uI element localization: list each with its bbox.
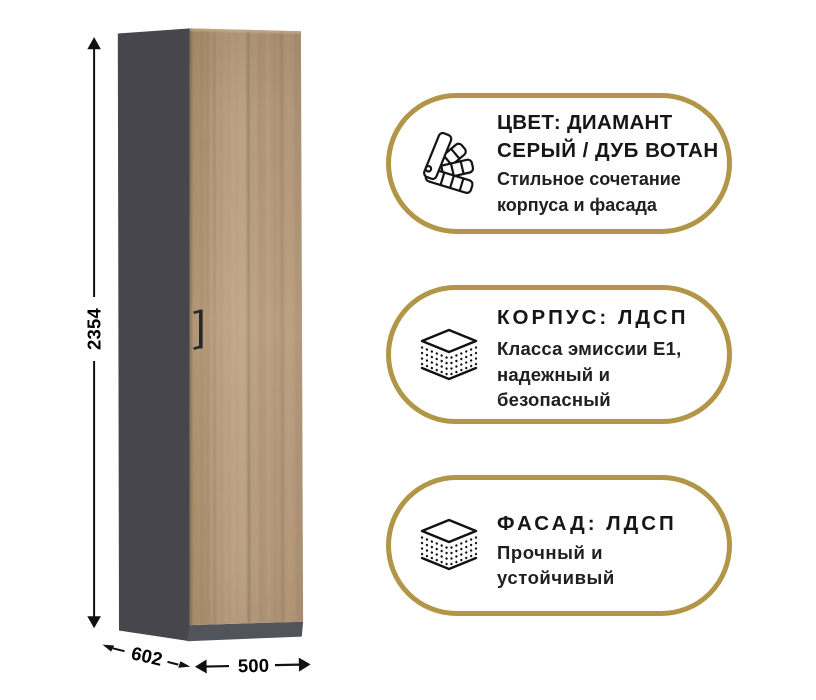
svg-text:500: 500 [238, 655, 270, 677]
svg-text:2354: 2354 [84, 308, 105, 350]
svg-text:602: 602 [129, 642, 164, 670]
